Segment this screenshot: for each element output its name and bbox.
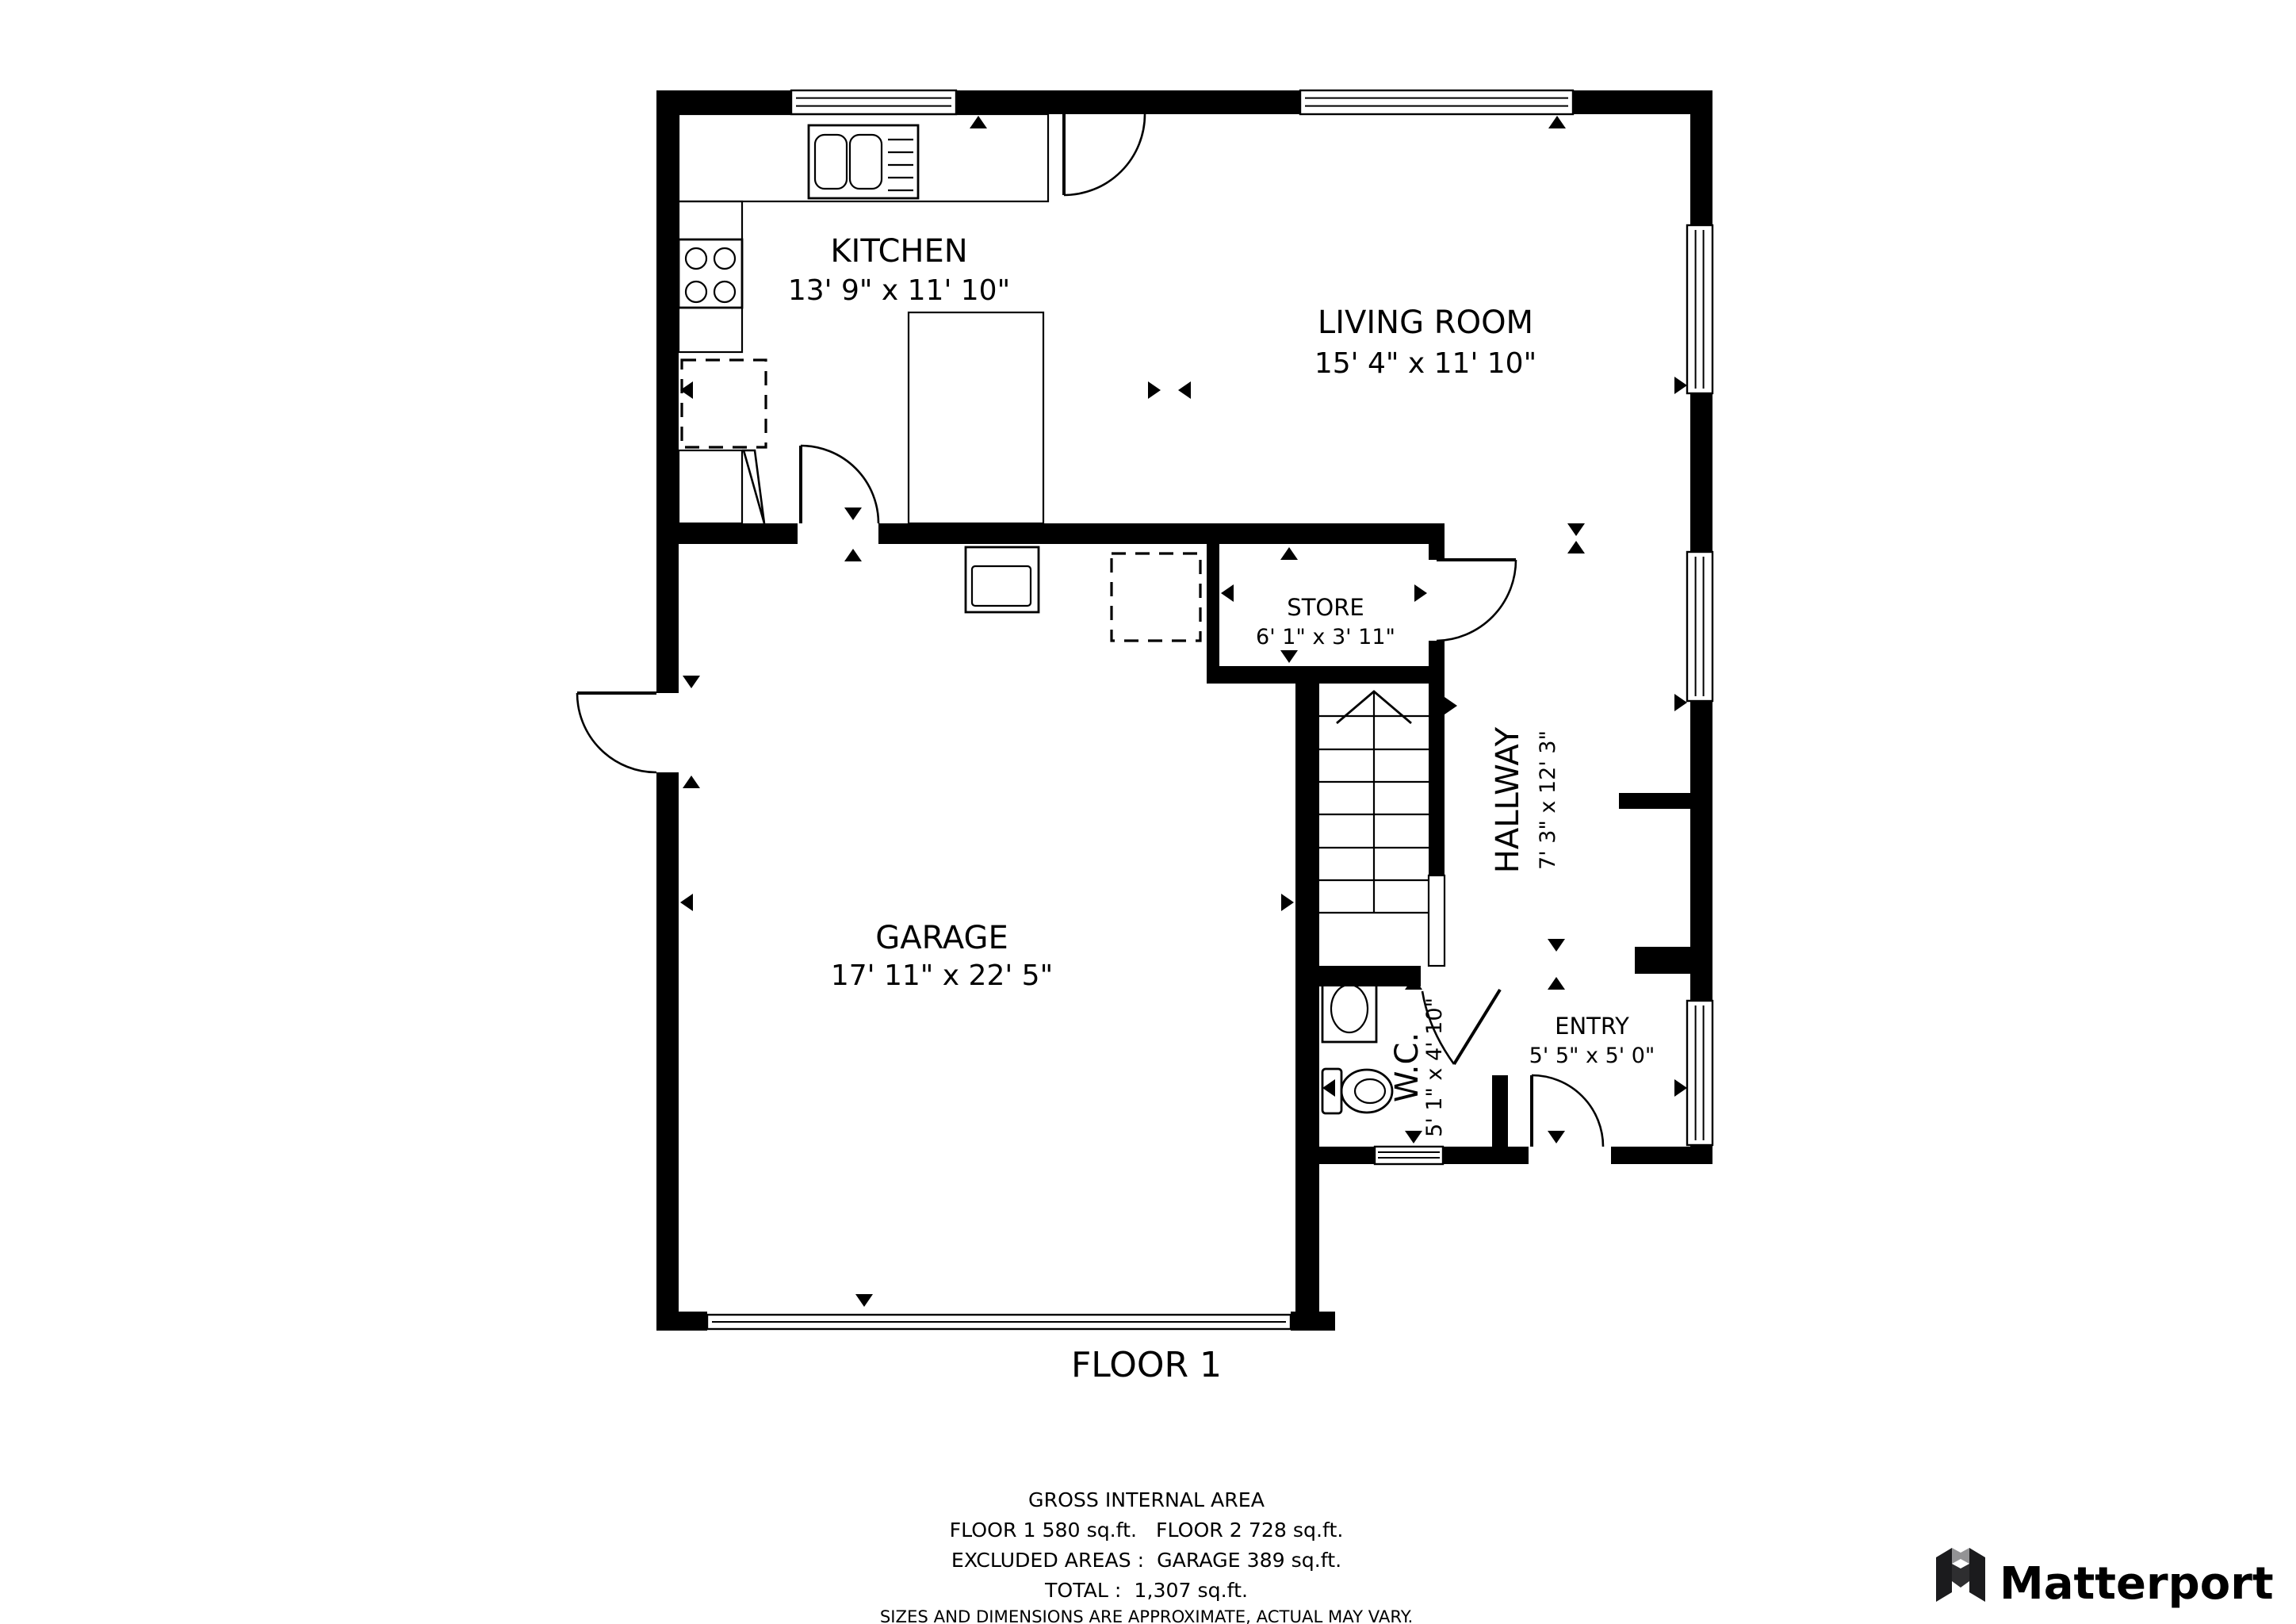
- arrow-down-icon: [844, 507, 862, 520]
- arrow-up-icon: [1280, 547, 1298, 560]
- room-labels: KITCHEN 13' 9" x 11' 10" LIVING ROOM 15'…: [788, 233, 1655, 1137]
- living-room-window-right-lower: [1687, 552, 1712, 701]
- arrow-right-icon: [1148, 381, 1161, 399]
- living-room-window-top: [1300, 90, 1573, 114]
- kitchen-window: [791, 90, 956, 114]
- wall-divider-right: [878, 523, 1445, 544]
- kitchen-label: KITCHEN: [830, 233, 967, 270]
- arrow-right-icon: [1281, 894, 1294, 911]
- arrow-right-icon: [1674, 1079, 1687, 1097]
- understair-edge: [1429, 875, 1445, 966]
- counter-left: [679, 201, 742, 352]
- wc-sink: [1322, 977, 1376, 1042]
- arrow-right-icon: [1674, 694, 1687, 711]
- wc-window: [1375, 1147, 1443, 1164]
- arrow-left-icon: [1178, 381, 1191, 399]
- arrow-down-icon: [1548, 939, 1565, 952]
- floor-label: FLOOR 1: [1071, 1345, 1222, 1385]
- arrow-down-icon: [683, 676, 700, 688]
- arrow-left-icon: [680, 894, 693, 911]
- arrow-right-icon: [1674, 377, 1687, 394]
- wall-wc-entry-divider: [1492, 1075, 1508, 1147]
- stairs: [1319, 691, 1445, 966]
- arrow-down-icon: [1405, 1131, 1422, 1143]
- arrow-right-icon: [1445, 697, 1457, 714]
- garage-side-door: [577, 693, 656, 772]
- footer-line1: FLOOR 1 580 sq.ft. FLOOR 2 728 sq.ft.: [950, 1519, 1344, 1542]
- wall-store-left: [1207, 544, 1219, 666]
- footer-disclaimer: SIZES AND DIMENSIONS ARE APPROXIMATE, AC…: [880, 1607, 1413, 1624]
- wall-stub-hallway-upper: [1619, 793, 1690, 809]
- hallway-label: HALLWAY: [1490, 726, 1526, 873]
- arrow-right-icon: [1414, 584, 1427, 602]
- store-label: STORE: [1287, 594, 1364, 621]
- arrow-up-icon: [1548, 977, 1565, 990]
- arrow-up-icon: [1567, 541, 1585, 553]
- entry-door: [1532, 1075, 1603, 1147]
- hallway-dims: 7' 3" x 12' 3": [1536, 730, 1560, 870]
- wall-bottom-wc-left: [1295, 1147, 1375, 1164]
- store-door: [1437, 560, 1516, 641]
- arrow-up-icon: [970, 116, 987, 128]
- arrow-left-icon: [1322, 1079, 1335, 1097]
- wc-label: W.C.: [1389, 1032, 1425, 1102]
- kitchen-island: [909, 312, 1043, 523]
- stove: [679, 239, 742, 308]
- kitchen-dims: 13' 9" x 11' 10": [788, 274, 1010, 307]
- matterport-logo-icon: [1936, 1548, 1985, 1602]
- living-room-window-right-upper: [1687, 225, 1712, 393]
- wall-garage-bottom-right: [1291, 1312, 1335, 1331]
- living-room-dims: 15' 4" x 11' 10": [1314, 347, 1536, 380]
- arrow-left-icon: [1221, 584, 1234, 602]
- entry-window: [1687, 1001, 1712, 1145]
- arrow-down-icon: [1548, 1131, 1565, 1143]
- wall-right-3: [1690, 701, 1712, 1001]
- arrow-down-icon: [855, 1294, 873, 1307]
- wall-store-bottom: [1207, 666, 1445, 684]
- kitchen-sink: [809, 125, 918, 198]
- arrow-up-icon: [683, 776, 700, 788]
- entry-label: ENTRY: [1555, 1013, 1629, 1040]
- wc-dims: 5' 1" x 4' 10": [1422, 998, 1447, 1137]
- wall-stairs-right: [1429, 684, 1445, 875]
- wall-bottom-mid: [1443, 1147, 1529, 1164]
- matterport-logo: Matterport: [1936, 1548, 2274, 1610]
- wall-divider-left: [679, 523, 798, 544]
- footer-area-summary: GROSS INTERNAL AREA FLOOR 1 580 sq.ft. F…: [880, 1488, 1413, 1624]
- wall-garage-bottom-left: [656, 1312, 707, 1331]
- wall-bottom-entry-right: [1611, 1147, 1712, 1164]
- garage-dims: 17' 11" x 22' 5": [831, 959, 1053, 992]
- dashed-appliance-garage: [1112, 553, 1200, 641]
- garage-door: [707, 1315, 1291, 1329]
- folding-leaf: [744, 450, 764, 523]
- living-room-label: LIVING ROOM: [1318, 304, 1533, 341]
- floor-plan-page: KITCHEN 13' 9" x 11' 10" LIVING ROOM 15'…: [0, 0, 2296, 1624]
- appliance-box: [966, 547, 1039, 612]
- floor-plan-svg: KITCHEN 13' 9" x 11' 10" LIVING ROOM 15'…: [0, 0, 2296, 1624]
- arrow-down-icon: [1280, 650, 1298, 663]
- arrow-up-icon: [844, 549, 862, 561]
- wall-garage-right: [1295, 684, 1319, 1331]
- counter-left-lower: [679, 450, 742, 523]
- store-dims: 6' 1" x 3' 11": [1256, 625, 1395, 649]
- front-door: [1064, 114, 1145, 195]
- wall-stub-hallway-lower: [1635, 947, 1690, 974]
- footer-line2: EXCLUDED AREAS : GARAGE 389 sq.ft.: [951, 1549, 1341, 1572]
- matterport-logo-text: Matterport: [1999, 1558, 2274, 1610]
- wall-right-1: [1690, 90, 1712, 225]
- wall-left-upper: [656, 90, 679, 693]
- entry-dims: 5' 5" x 5' 0": [1529, 1044, 1655, 1068]
- arrow-up-icon: [1548, 116, 1566, 128]
- wall-store-right-bottom: [1429, 641, 1445, 684]
- wall-right-2: [1690, 393, 1712, 552]
- kitchen-fixtures: [679, 114, 1200, 641]
- footer-line3: TOTAL : 1,307 sq.ft.: [1044, 1579, 1248, 1602]
- dashed-appliance-left: [682, 360, 766, 447]
- wall-store-right-top: [1429, 544, 1445, 560]
- garage-label: GARAGE: [875, 920, 1008, 956]
- footer-title: GROSS INTERNAL AREA: [1028, 1488, 1265, 1511]
- wall-left-lower: [656, 772, 679, 1331]
- arrow-down-icon: [1567, 523, 1585, 536]
